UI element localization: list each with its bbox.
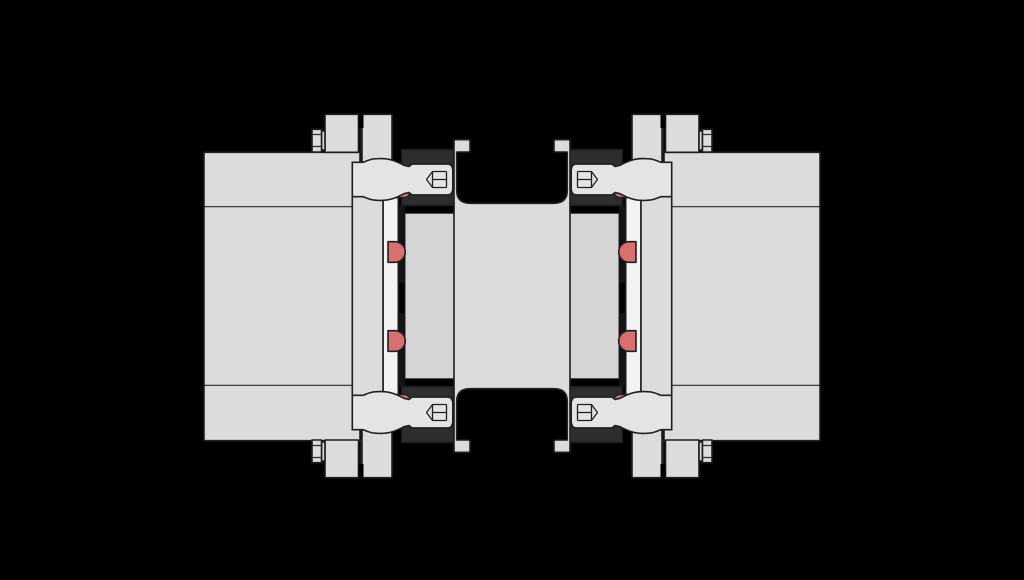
coupling-cross-section — [0, 0, 1024, 580]
coupling-drawing-canvas — [0, 0, 1024, 580]
